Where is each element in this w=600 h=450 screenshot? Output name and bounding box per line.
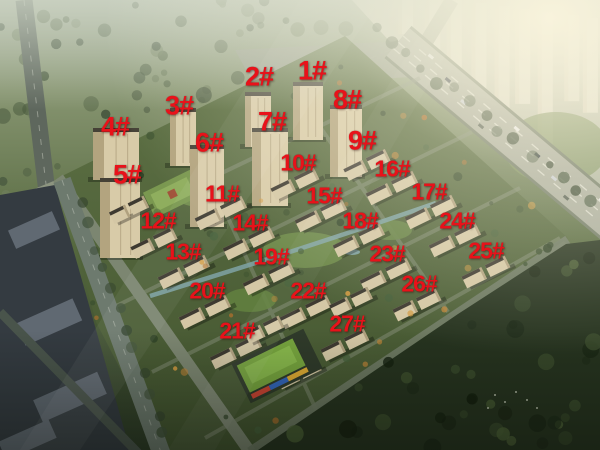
- building-label-27: 27#: [329, 313, 364, 336]
- building-label-2: 2#: [245, 64, 273, 91]
- building-label-24: 24#: [439, 210, 474, 233]
- aerial-rendering: 1#2#3#4#5#6#7#8#9#10#11#12#13#14#15#16#1…: [0, 0, 600, 450]
- building-markers: 1#2#3#4#5#6#7#8#9#10#11#12#13#14#15#16#1…: [0, 0, 600, 450]
- building-label-1: 1#: [298, 58, 326, 85]
- building-label-25: 25#: [468, 240, 503, 263]
- building-label-26: 26#: [401, 273, 436, 296]
- building-label-10: 10#: [280, 152, 315, 175]
- building-label-4: 4#: [101, 114, 129, 141]
- building-label-6: 6#: [195, 130, 223, 157]
- building-label-20: 20#: [189, 280, 224, 303]
- building-label-14: 14#: [232, 212, 267, 235]
- building-label-15: 15#: [306, 185, 341, 208]
- building-label-13: 13#: [165, 241, 200, 264]
- building-label-9: 9#: [348, 128, 376, 155]
- building-label-22: 22#: [290, 280, 325, 303]
- building-label-16: 16#: [374, 158, 409, 181]
- building-label-21: 21#: [219, 320, 254, 343]
- building-label-5: 5#: [113, 162, 141, 189]
- building-label-8: 8#: [333, 87, 361, 114]
- building-label-18: 18#: [342, 210, 377, 233]
- building-label-7: 7#: [258, 109, 286, 136]
- building-label-19: 19#: [253, 246, 288, 269]
- building-label-3: 3#: [165, 93, 193, 120]
- building-label-17: 17#: [411, 181, 446, 204]
- building-label-23: 23#: [369, 243, 404, 266]
- building-label-12: 12#: [140, 210, 175, 233]
- building-label-11: 11#: [205, 183, 239, 206]
